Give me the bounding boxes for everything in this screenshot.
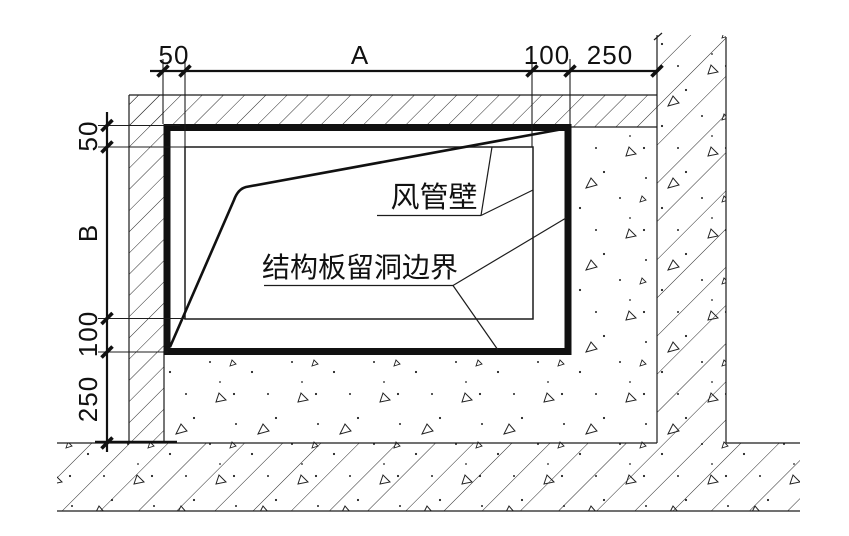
floor-stipple <box>57 443 800 511</box>
top-slab-hatch <box>129 95 657 127</box>
duct-wall-label: 风管壁 <box>390 181 477 214</box>
dim-top-250: 250 <box>587 40 633 70</box>
duct-wall-leader-2 <box>481 190 533 216</box>
dim-top-100: 100 <box>524 40 570 70</box>
drawing-canvas: 风管壁 结构板留洞边界 50 A 100 250 <box>0 0 849 536</box>
dim-top-A: A <box>351 40 369 70</box>
duct-wall-leader-1 <box>481 147 492 216</box>
opening-boundary-label: 结构板留洞边界 <box>262 252 458 283</box>
right-wall-stipple <box>657 35 726 443</box>
dim-left-50: 50 <box>73 121 103 152</box>
dim-left-250: 250 <box>73 376 103 422</box>
slab-opening-boundary-rect <box>167 128 568 352</box>
duct-wall-rect <box>185 147 533 319</box>
screenshot-root: 风管壁 结构板留洞边界 50 A 100 250 <box>0 0 849 536</box>
dim-top-50: 50 <box>159 40 190 70</box>
opening-leader-1 <box>453 218 566 286</box>
dim-left-100: 100 <box>73 311 103 357</box>
duct-diagonal-break-line <box>170 129 563 347</box>
opening-leader-2 <box>453 286 498 351</box>
dim-left-B: B <box>73 224 103 242</box>
